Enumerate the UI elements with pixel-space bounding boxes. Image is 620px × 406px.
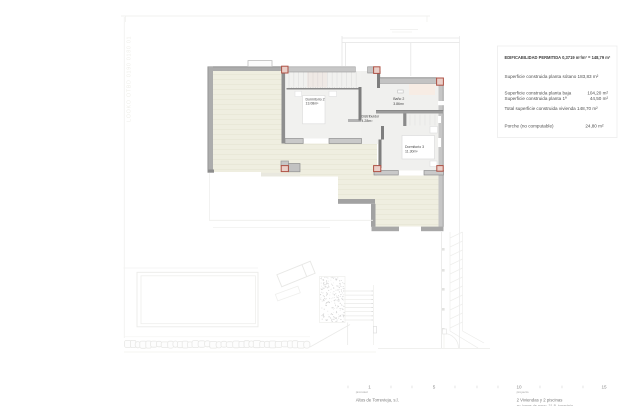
- svg-text:EDIFICABILIDAD PERMITIDA 0,371: EDIFICABILIDAD PERMITIDA 0,3719 m²/m² = …: [505, 55, 611, 60]
- svg-text:Porche (no computable): Porche (no computable): [505, 123, 554, 128]
- svg-text:5: 5: [433, 385, 436, 390]
- svg-text:15: 15: [601, 385, 607, 390]
- svg-text:13.08m²: 13.08m²: [306, 102, 320, 106]
- svg-text:Superficie construida planta 1: Superficie construida planta 1ª: [505, 96, 568, 101]
- svg-text:LOOKO OTBD 0190 0180 01: LOOKO OTBD 0190 0180 01: [127, 36, 133, 122]
- svg-text:10: 10: [516, 385, 522, 390]
- svg-text:4.28m²: 4.28m²: [362, 119, 374, 123]
- svg-text:1: 1: [368, 385, 371, 390]
- svg-text:promotor: promotor: [356, 390, 368, 394]
- svg-text:Distribuidor: Distribuidor: [362, 115, 381, 119]
- svg-text:Altos de Torrevieja, s.l.: Altos de Torrevieja, s.l.: [356, 397, 399, 402]
- svg-text:2 Viviendas y 2 piscinas: 2 Viviendas y 2 piscinas: [517, 397, 563, 402]
- svg-text:3.86m²: 3.86m²: [393, 102, 405, 106]
- svg-text:11.30m²: 11.30m²: [405, 149, 418, 153]
- svg-text:Baño 2: Baño 2: [393, 97, 404, 101]
- svg-text:24,80 m²: 24,80 m²: [585, 123, 604, 128]
- svg-text:Superficie construida planta s: Superficie construida planta sótano 183,…: [505, 74, 599, 79]
- svg-text:44,50 m²: 44,50 m²: [590, 96, 609, 101]
- svg-text:proyecto: proyecto: [517, 390, 529, 394]
- svg-text:Total superficie construida vi: Total superficie construida vivienda 148…: [505, 106, 599, 111]
